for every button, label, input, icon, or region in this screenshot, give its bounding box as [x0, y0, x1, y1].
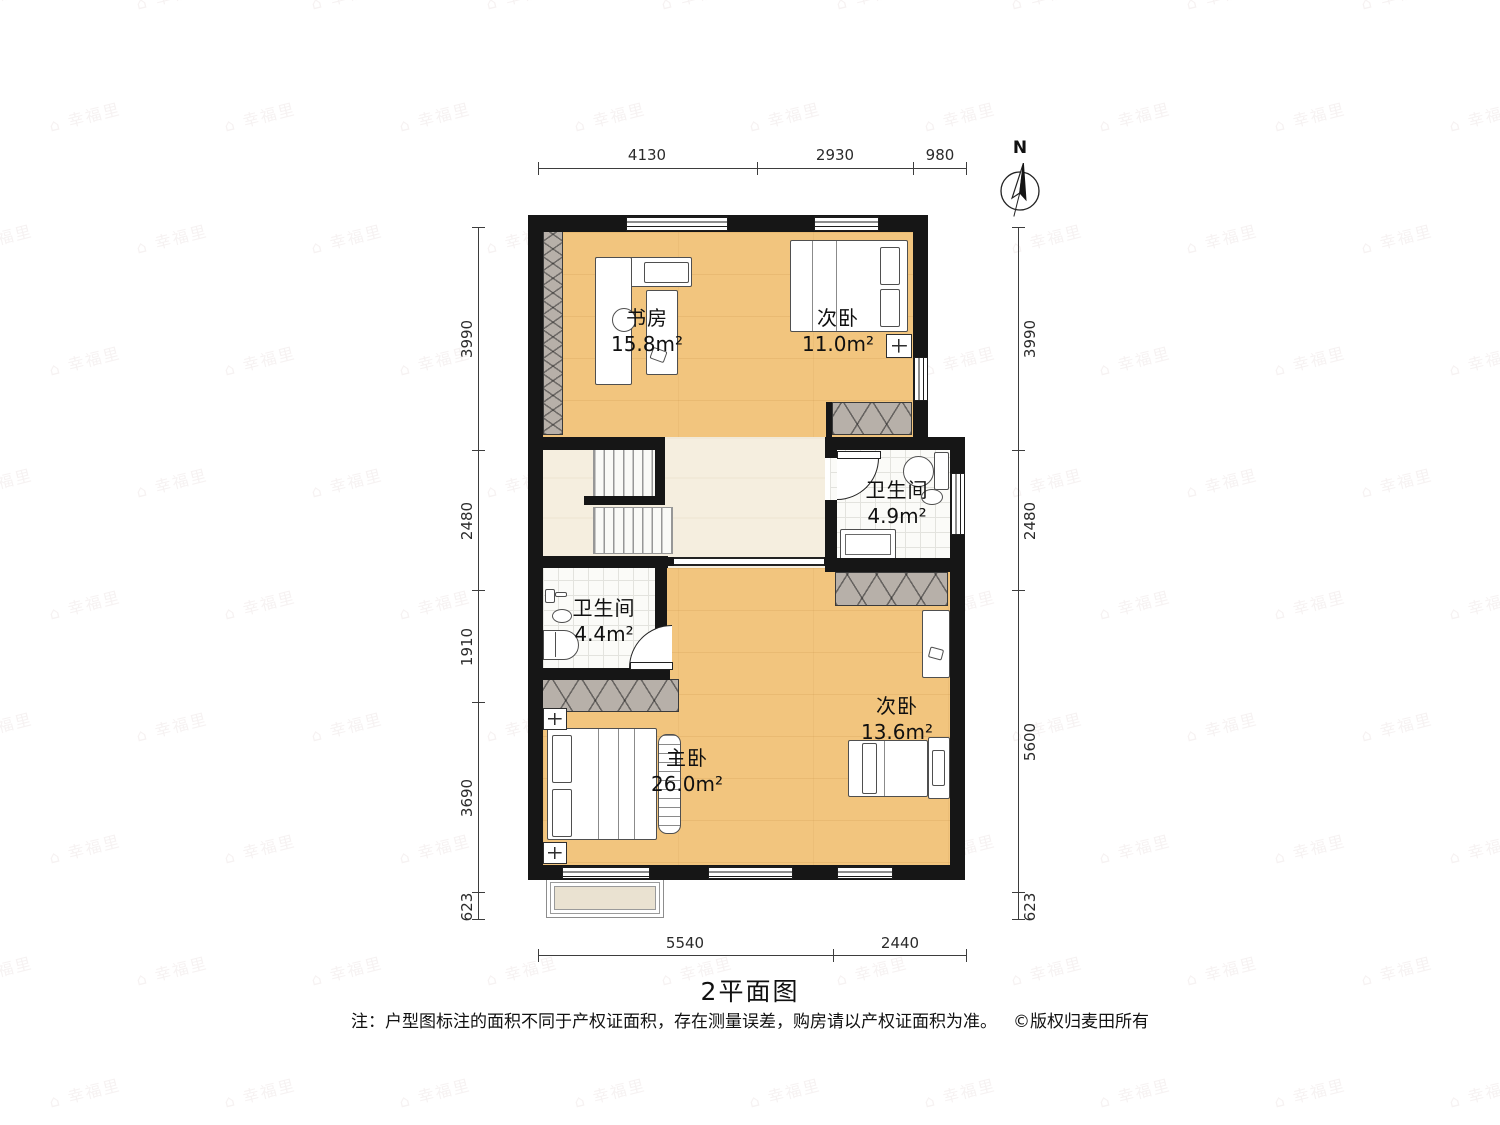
- watermark-text: ⌂ 幸福里: [308, 461, 385, 502]
- dim-label: 2930: [795, 146, 875, 164]
- watermark-text: ⌂ 幸福里: [221, 827, 298, 868]
- room-area: 4.9m²: [866, 503, 929, 529]
- watermark-text: ⌂ 幸福里: [1096, 339, 1173, 380]
- dimension-tick: [1012, 227, 1025, 228]
- stairs-upper-flight: [593, 447, 660, 497]
- watermark-text: ⌂ 幸福里: [1446, 95, 1500, 136]
- watermark-text: ⌂ 幸福里: [571, 95, 648, 136]
- room-name: 主卧: [651, 745, 723, 771]
- wall: [825, 437, 965, 450]
- watermark-text: ⌂ 幸福里: [1096, 827, 1173, 868]
- pillow: [552, 789, 572, 837]
- dim-label: 980: [900, 146, 980, 164]
- pillow: [862, 743, 877, 794]
- watermark-text: ⌂ 幸福里: [1008, 461, 1085, 502]
- nightstand: [543, 708, 567, 730]
- sink: [552, 609, 572, 623]
- balcony: [546, 878, 664, 918]
- watermark-text: ⌂ 幸福里: [1358, 0, 1435, 15]
- window: [626, 216, 728, 231]
- dim-label: 623: [458, 867, 476, 947]
- watermark-text: ⌂ 幸福里: [0, 217, 35, 258]
- bathtub: [840, 529, 896, 560]
- dim-label: 4130: [607, 146, 687, 164]
- toilet-tank: [934, 452, 949, 490]
- room-label-master: 主卧 26.0m²: [651, 745, 723, 797]
- watermark-text: ⌂ 幸福里: [833, 0, 910, 15]
- pillow: [932, 750, 945, 786]
- dim-label: 2440: [860, 934, 940, 952]
- room-name: 卫生间: [573, 595, 636, 621]
- watermark-text: ⌂ 幸福里: [1358, 461, 1435, 502]
- note-text: 注：户型图标注的面积不同于产权证面积，存在测量误差，购房请以产权证面积为准。: [351, 1012, 997, 1032]
- room-area: 15.8m²: [611, 331, 683, 357]
- watermark-text: ⌂ 幸福里: [1446, 339, 1500, 380]
- dimension-line-left: [478, 227, 479, 920]
- watermark-text: ⌂ 幸福里: [1008, 0, 1085, 15]
- north-compass: N: [992, 138, 1048, 225]
- watermark-text: ⌂ 幸福里: [1271, 339, 1348, 380]
- dimension-line-top: [538, 168, 967, 169]
- watermark-text: ⌂ 幸福里: [1096, 95, 1173, 136]
- pillow: [552, 735, 572, 783]
- dim-label: 1910: [458, 607, 476, 687]
- dim-label: 3690: [458, 758, 476, 838]
- wall: [826, 402, 832, 437]
- watermark-text: ⌂ 幸福里: [133, 705, 210, 746]
- dimension-tick: [538, 949, 539, 962]
- compass-icon: [992, 159, 1048, 221]
- north-label: N: [992, 138, 1048, 158]
- balcony-floor: [554, 886, 656, 910]
- dimension-tick: [472, 227, 485, 228]
- watermark-text: ⌂ 幸福里: [221, 583, 298, 624]
- dimension-tick: [472, 450, 485, 451]
- stair-railing: [668, 557, 830, 566]
- watermark-text: ⌂ 幸福里: [921, 95, 998, 136]
- watermark-text: ⌂ 幸福里: [746, 95, 823, 136]
- toilet-seat-line: [555, 632, 556, 657]
- wall: [528, 437, 658, 450]
- dimension-tick: [538, 162, 539, 175]
- watermark-text: ⌂ 幸福里: [396, 95, 473, 136]
- watermark-text: ⌂ 幸福里: [46, 339, 123, 380]
- stair-landing: [584, 496, 664, 505]
- dim-label: 2480: [458, 481, 476, 561]
- watermark-text: ⌂ 幸福里: [133, 461, 210, 502]
- watermark-text: ⌂ 幸福里: [1446, 583, 1500, 624]
- dimension-tick: [757, 162, 758, 175]
- room-area: 13.6m²: [861, 719, 933, 745]
- watermark-text: ⌂ 幸福里: [308, 705, 385, 746]
- wardrobe-below-bathroom: [835, 572, 948, 606]
- nightstand: [886, 334, 912, 358]
- watermark-text: ⌂ 幸福里: [1358, 705, 1435, 746]
- dimension-line-bottom: [538, 955, 967, 956]
- dimension-line-right: [1018, 227, 1019, 920]
- watermark-text: ⌂ 幸福里: [308, 0, 385, 15]
- wardrobe-study: [543, 230, 563, 435]
- bed-seam: [634, 729, 635, 839]
- shower-arm-icon: [555, 592, 567, 597]
- wall: [825, 450, 837, 458]
- watermark-text: ⌂ 幸福里: [0, 461, 35, 502]
- watermark-text: ⌂ 幸福里: [1446, 827, 1500, 868]
- watermark-text: ⌂ 幸福里: [396, 1071, 473, 1112]
- watermark-text: ⌂ 幸福里: [308, 217, 385, 258]
- wall: [655, 568, 667, 630]
- dim-label: 2480: [1021, 481, 1039, 561]
- wall: [825, 558, 965, 572]
- watermark-text: ⌂ 幸福里: [46, 95, 123, 136]
- dimension-tick: [1012, 590, 1025, 591]
- stairs-lower-flight: [593, 507, 673, 554]
- room-name: 卫生间: [866, 477, 929, 503]
- copyright-text: ©版权归麦田所有: [1013, 1012, 1149, 1032]
- dimension-tick: [833, 949, 834, 962]
- room-label-bedroom-bottom: 次卧 13.6m²: [861, 693, 933, 745]
- dimension-tick: [1012, 450, 1025, 451]
- bed-seam: [884, 741, 885, 796]
- window: [708, 866, 793, 879]
- wall: [913, 215, 928, 450]
- watermark-text: ⌂ 幸福里: [1271, 583, 1348, 624]
- watermark-text: ⌂ 幸福里: [46, 1071, 123, 1112]
- watermark-text: ⌂ 幸福里: [483, 0, 560, 15]
- watermark-text: ⌂ 幸福里: [221, 339, 298, 380]
- dimension-tick: [472, 702, 485, 703]
- watermark-text: ⌂ 幸福里: [0, 0, 35, 15]
- dimension-tick: [472, 590, 485, 591]
- watermark-text: ⌂ 幸福里: [1183, 461, 1260, 502]
- balcony-rail: [550, 882, 660, 914]
- door-leaf-bathroom-right: [837, 451, 881, 459]
- watermark-text: ⌂ 幸福里: [221, 1071, 298, 1112]
- bed-seam: [618, 729, 619, 839]
- watermark-text: ⌂ 幸福里: [1271, 1071, 1348, 1112]
- wall: [540, 556, 668, 568]
- room-name: 书房: [611, 305, 683, 331]
- dim-label: 5600: [1021, 702, 1039, 782]
- window: [814, 216, 879, 231]
- watermark-text: ⌂ 幸福里: [1183, 705, 1260, 746]
- watermark-text: ⌂ 幸福里: [1183, 0, 1260, 15]
- watermark-text: ⌂ 幸福里: [221, 95, 298, 136]
- watermark-text: ⌂ 幸福里: [133, 0, 210, 15]
- room-label-bath-left: 卫生间 4.4m²: [573, 595, 636, 647]
- bed-single: [848, 740, 928, 797]
- room-name: 次卧: [861, 693, 933, 719]
- watermark-text: ⌂ 幸福里: [658, 0, 735, 15]
- wall: [655, 437, 665, 505]
- room-label-study: 书房 15.8m²: [611, 305, 683, 357]
- window: [837, 866, 893, 879]
- desk: [922, 610, 950, 678]
- watermark-text: ⌂ 幸福里: [46, 827, 123, 868]
- room-area: 11.0m²: [802, 331, 874, 357]
- watermark-text: ⌂ 幸福里: [133, 217, 210, 258]
- dim-label: 5540: [645, 934, 725, 952]
- wall: [528, 215, 543, 880]
- watermark-text: ⌂ 幸福里: [1008, 705, 1085, 746]
- dim-label: 3990: [1021, 299, 1039, 379]
- watermark-text: ⌂ 幸福里: [1096, 583, 1173, 624]
- watermark-text: ⌂ 幸福里: [1271, 95, 1348, 136]
- room-area: 4.4m²: [573, 621, 636, 647]
- watermark-text: ⌂ 幸福里: [1271, 827, 1348, 868]
- watermark-text: ⌂ 幸福里: [1096, 1071, 1173, 1112]
- watermark-text: ⌂ 幸福里: [1358, 217, 1435, 258]
- window: [950, 473, 965, 535]
- wall: [825, 500, 837, 558]
- dim-label: 623: [1021, 867, 1039, 947]
- watermark-text: ⌂ 幸福里: [746, 1071, 823, 1112]
- watermark-text: ⌂ 幸福里: [921, 1071, 998, 1112]
- door-leaf-bathroom-left: [630, 662, 673, 670]
- dimension-tick: [966, 949, 967, 962]
- watermark-text: ⌂ 幸福里: [571, 1071, 648, 1112]
- watermark-text: ⌂ 幸福里: [0, 705, 35, 746]
- watermark-text: ⌂ 幸福里: [1183, 217, 1260, 258]
- monitor: [644, 262, 689, 283]
- plan-note: 注：户型图标注的面积不同于产权证面积，存在测量误差，购房请以产权证面积为准。©版…: [0, 1007, 1500, 1032]
- bed-seam: [598, 729, 599, 839]
- nightstand: [543, 842, 567, 864]
- watermark-text: ⌂ 幸福里: [1446, 1071, 1500, 1112]
- room-name: 次卧: [802, 305, 874, 331]
- pillow: [880, 247, 900, 285]
- floorplan-canvas: ⌂ 幸福里⌂ 幸福里⌂ 幸福里⌂ 幸福里⌂ 幸福里⌂ 幸福里⌂ 幸福里⌂ 幸福里…: [0, 0, 1500, 1125]
- window: [913, 357, 928, 401]
- room-area: 26.0m²: [651, 771, 723, 797]
- balcony-door: [562, 866, 650, 879]
- pillow: [880, 289, 900, 327]
- bathtub-inner: [845, 534, 891, 555]
- wardrobe-above-bathroom: [832, 402, 912, 435]
- watermark-text: ⌂ 幸福里: [46, 583, 123, 624]
- watermark-text: ⌂ 幸福里: [921, 339, 998, 380]
- room-label-bedroom-top: 次卧 11.0m²: [802, 305, 874, 357]
- dim-label: 3990: [458, 299, 476, 379]
- shower-icon: [545, 589, 555, 603]
- room-label-bath-right: 卫生间 4.9m²: [866, 477, 929, 529]
- plan-title: 2平面图: [0, 972, 1500, 1008]
